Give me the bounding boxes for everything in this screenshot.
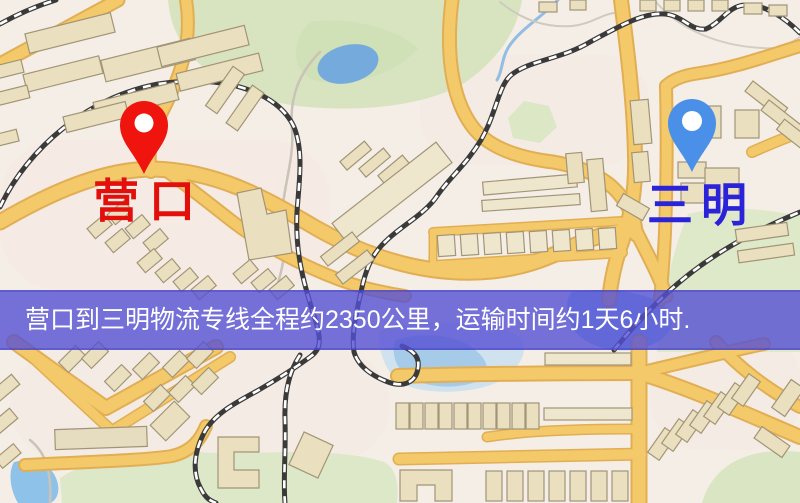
map-canvas: [0, 0, 800, 503]
map[interactable]: 营口 三明 营口到三明物流专线全程约2350公里，运输时间约1天6小时.: [0, 0, 800, 503]
destination-label: 三明: [647, 182, 755, 228]
destination-pin[interactable]: [665, 96, 719, 174]
destination-pin-shape: [668, 99, 716, 172]
info-banner-text: 营口到三明物流专线全程约2350公里，运输时间约1天6小时.: [0, 290, 800, 350]
info-banner: 营口到三明物流专线全程约2350公里，运输时间约1天6小时.: [0, 290, 800, 350]
origin-pin-hole: [135, 114, 154, 133]
origin-pin[interactable]: [117, 98, 171, 176]
destination-pin-hole: [682, 111, 702, 131]
origin-pin-shape: [120, 101, 168, 174]
origin-label: 营口: [93, 178, 205, 224]
